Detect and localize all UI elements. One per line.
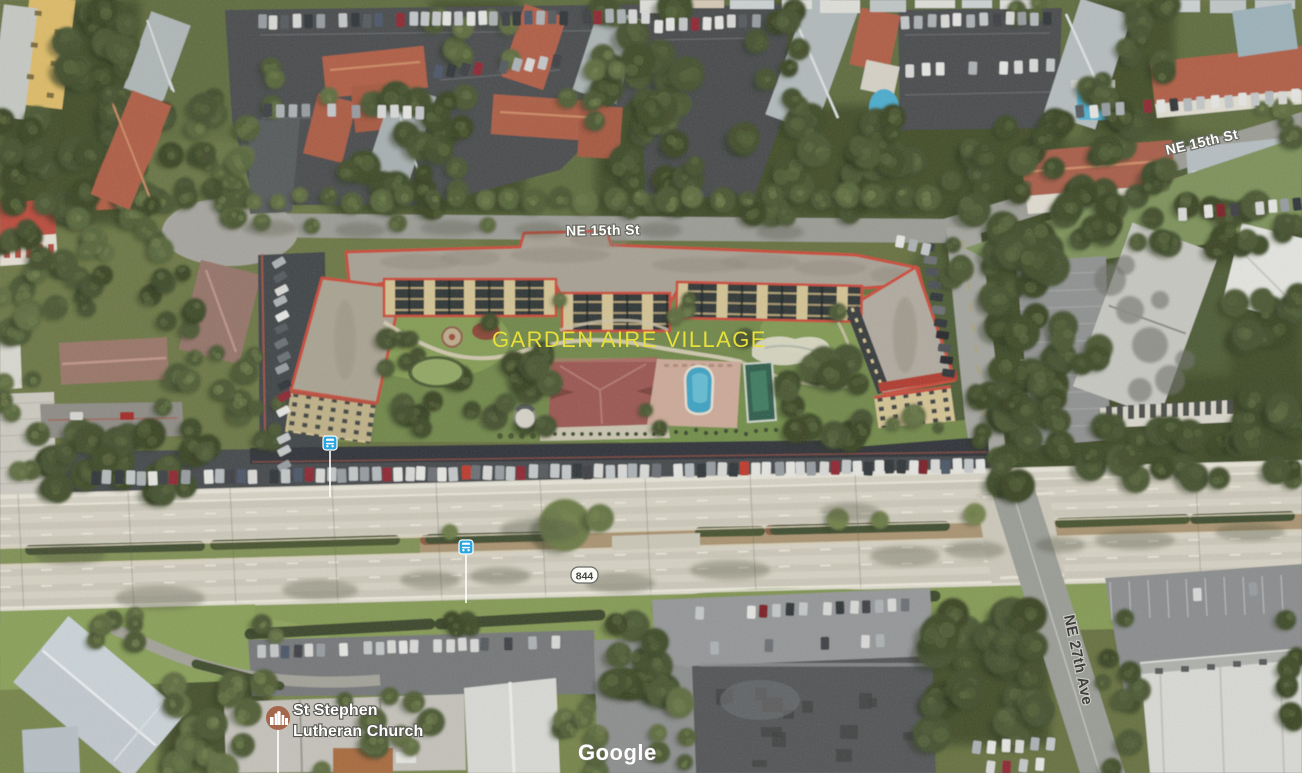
svg-text:Lutheran Church: Lutheran Church — [293, 723, 423, 740]
svg-text:NE 15th St: NE 15th St — [566, 221, 640, 238]
svg-text:GARDEN AIRE VILLAGE: GARDEN AIRE VILLAGE — [492, 327, 767, 352]
svg-text:Google: Google — [578, 740, 657, 765]
svg-text:844: 844 — [576, 571, 594, 583]
svg-text:St Stephen: St Stephen — [293, 702, 378, 719]
